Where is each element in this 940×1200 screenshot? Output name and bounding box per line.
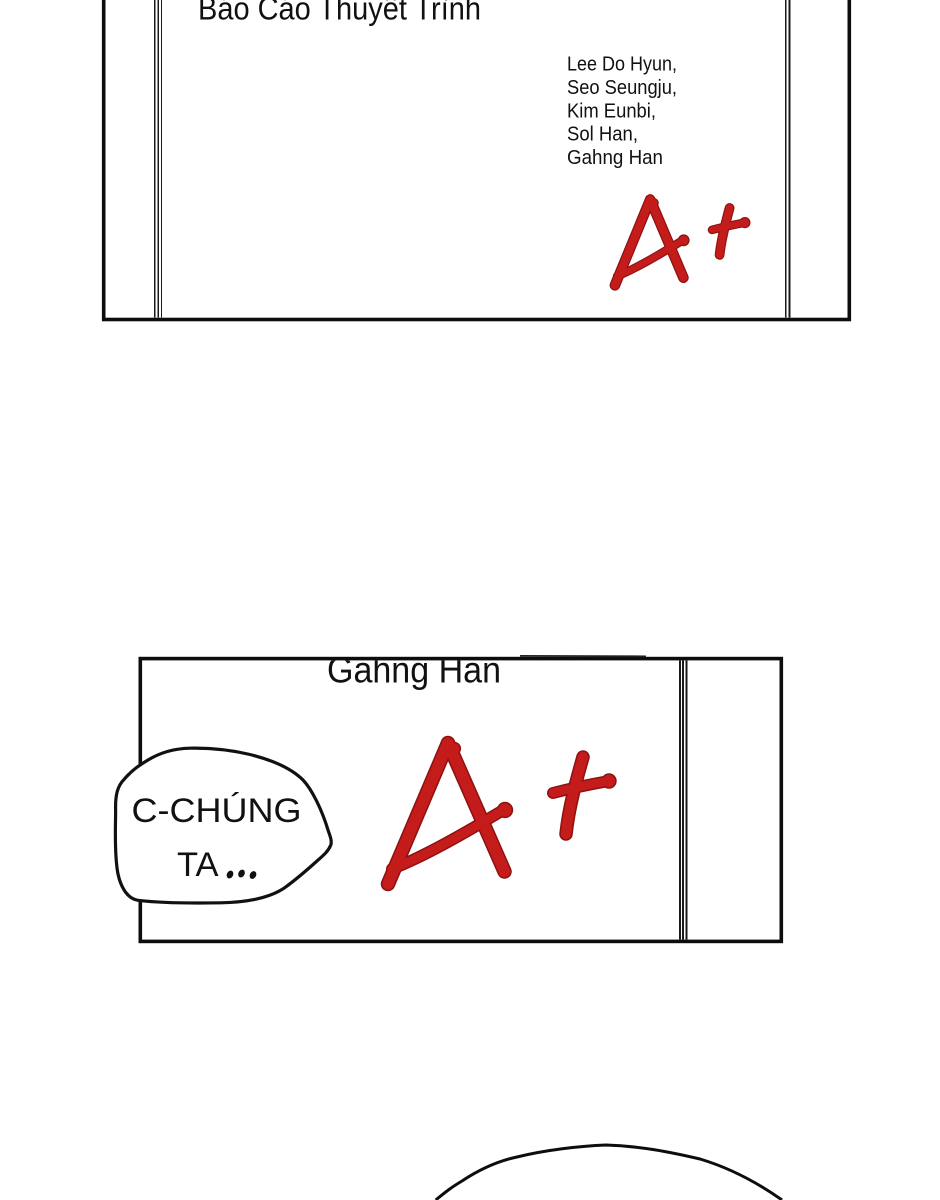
svg-text:Seo Seungju,: Seo Seungju,: [567, 76, 677, 99]
svg-text:TA: TA: [177, 846, 219, 884]
svg-text:C-CHÚNG: C-CHÚNG: [132, 792, 302, 830]
svg-text:Gahng Han: Gahng Han: [567, 146, 663, 169]
svg-text:Lee Do Hyun,: Lee Do Hyun,: [567, 52, 677, 75]
svg-text:Báo Cáo Thuyết Trình: Báo Cáo Thuyết Trình: [198, 0, 481, 27]
svg-text:Sol Han,: Sol Han,: [567, 123, 638, 146]
svg-text:Kim Eunbi,: Kim Eunbi,: [567, 99, 656, 122]
